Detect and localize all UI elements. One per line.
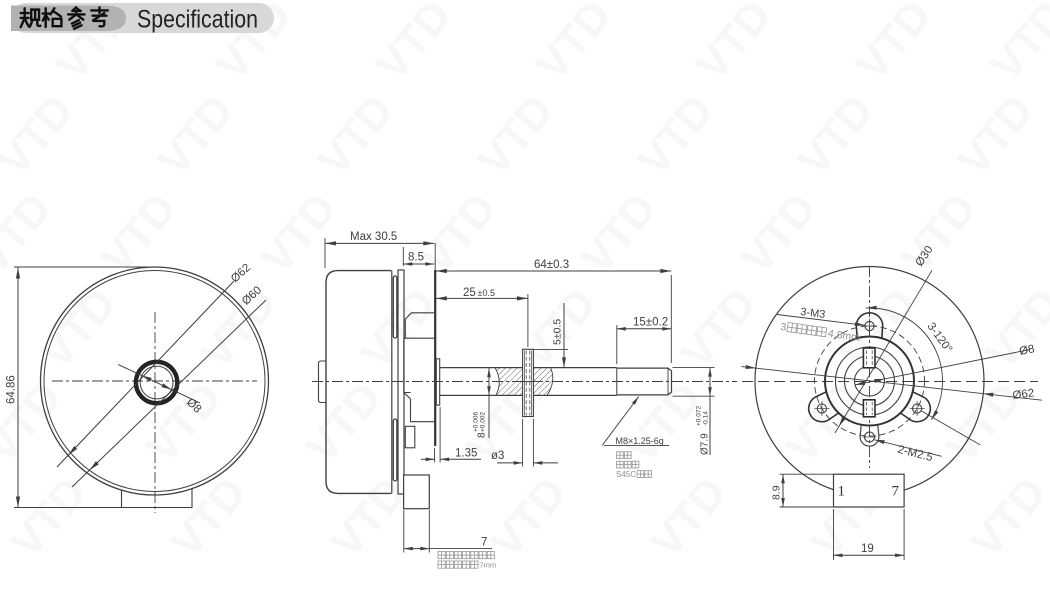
svg-text:8.5: 8.5 <box>408 252 424 264</box>
svg-text:1: 1 <box>838 484 846 500</box>
svg-text:+0.006: +0.006 <box>473 412 480 432</box>
svg-text:M8×1.25-6g: M8×1.25-6g <box>616 436 664 446</box>
svg-text:Ø7.9: Ø7.9 <box>700 433 711 455</box>
svg-text:-0.14: -0.14 <box>703 411 710 426</box>
svg-text:S45C: S45C <box>616 470 636 479</box>
svg-text:64.86: 64.86 <box>6 375 18 404</box>
svg-text:1.35: 1.35 <box>455 448 477 460</box>
svg-text:Max 30.5: Max 30.5 <box>350 231 397 243</box>
svg-text:25: 25 <box>463 287 476 299</box>
svg-text:+0.072: +0.072 <box>696 406 703 426</box>
svg-text:±0.5: ±0.5 <box>478 288 495 298</box>
svg-text:8.9: 8.9 <box>771 485 783 500</box>
svg-text:64±0.3: 64±0.3 <box>534 259 569 271</box>
svg-text:ø3: ø3 <box>491 450 504 462</box>
svg-text:7: 7 <box>892 484 900 500</box>
svg-text:5±0.5: 5±0.5 <box>552 319 564 345</box>
svg-text:7: 7 <box>481 537 487 549</box>
svg-text:+0.002: +0.002 <box>480 412 487 432</box>
svg-text:19: 19 <box>861 543 874 555</box>
svg-text:15±0.2: 15±0.2 <box>633 317 668 329</box>
svg-text:7mm: 7mm <box>480 561 497 570</box>
svg-text:Specification: Specification <box>137 6 258 34</box>
